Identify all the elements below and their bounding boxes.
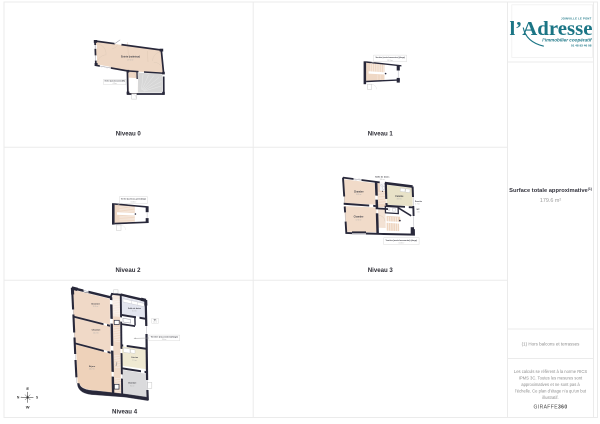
- svg-text:Verrière (accès/mezzanine) (ét: Verrière (accès/mezzanine) (étage): [375, 56, 405, 59]
- svg-text:Niveau 3: Niveau 3: [368, 267, 394, 274]
- svg-text:approximatives et ne sont pas: approximatives et ne sont pas à: [521, 382, 580, 387]
- svg-text:Douche: Douche: [415, 201, 423, 203]
- svg-text:13.3 m²: 13.3 m²: [387, 59, 393, 62]
- svg-text:Niveau 1: Niveau 1: [368, 131, 394, 138]
- svg-text:11.9 m²: 11.9 m²: [356, 193, 362, 196]
- svg-text:Entrée (extérieur): Entrée (extérieur): [121, 56, 140, 59]
- svg-text:Chambre: Chambre: [92, 329, 102, 332]
- svg-text:Cuisine: Cuisine: [131, 357, 139, 359]
- svg-text:17.3 m²: 17.3 m²: [355, 218, 361, 221]
- svg-text:179.6 m²: 179.6 m²: [540, 198, 561, 204]
- svg-text:3.4 m²: 3.4 m²: [380, 178, 385, 181]
- svg-text:8.9 m²: 8.9 m²: [397, 198, 402, 201]
- svg-text:l’immobilier coopératif: l’immobilier coopératif: [542, 37, 592, 42]
- svg-text:Verrière (accès/mezzanine) (ét: Verrière (accès/mezzanine) (étage): [386, 239, 418, 242]
- svg-text:illustratif.: illustratif.: [542, 395, 558, 400]
- svg-text:Salle de bains: Salle de bains: [375, 176, 390, 178]
- svg-text:l’échelle. Ce plan d’étage n’a: l’échelle. Ce plan d’étage n’a qu’un but: [515, 389, 587, 394]
- svg-text:Cuisine: Cuisine: [395, 196, 404, 198]
- svg-text:01 48 93 46 08: 01 48 93 46 08: [571, 44, 592, 48]
- svg-text:Les calculs se réfèrent à la n: Les calculs se réfèrent à la norme RICS: [514, 369, 587, 374]
- svg-text:IPMS 3C. Toutes les mesures so: IPMS 3C. Toutes les mesures sont: [519, 376, 583, 381]
- svg-text:13.3 m²: 13.3 m²: [131, 200, 137, 203]
- svg-text:1.7 m²: 1.7 m²: [415, 203, 420, 206]
- svg-text:13.3 m²: 13.3 m²: [399, 242, 405, 245]
- svg-text:Chambre: Chambre: [128, 383, 137, 385]
- svg-text:Chambre: Chambre: [354, 191, 365, 194]
- svg-text:GIRAFFE360: GIRAFFE360: [533, 405, 567, 411]
- svg-text:Verrière (mezzanine) (étage): Verrière (mezzanine) (étage): [151, 336, 179, 339]
- svg-text:Surface totale approximative(1: Surface totale approximative(1): [509, 187, 592, 194]
- svg-text:11.3 m²: 11.3 m²: [93, 305, 99, 308]
- svg-text:Salle de bains: Salle de bains: [128, 308, 141, 310]
- svg-text:27.1 m²: 27.1 m²: [127, 58, 134, 61]
- svg-text:Niveau 0: Niveau 0: [116, 131, 142, 138]
- svg-text:Verrière (accès/sous-pente) (é: Verrière (accès/sous-pente) (étage): [121, 198, 146, 201]
- svg-text:Niveau 4: Niveau 4: [112, 409, 138, 416]
- svg-text:26.2 m²: 26.2 m²: [89, 368, 95, 371]
- svg-text:Chambre: Chambre: [354, 216, 365, 219]
- svg-text:1 m²: 1 m²: [417, 210, 421, 213]
- svg-text:Niveau 2: Niveau 2: [115, 267, 141, 274]
- svg-text:W: W: [26, 405, 30, 410]
- svg-text:14.3 m²: 14.3 m²: [93, 331, 99, 334]
- svg-text:E: E: [26, 386, 29, 391]
- svg-text:(1) Hors balcons et terrasses: (1) Hors balcons et terrasses: [522, 341, 581, 346]
- svg-text:Séjour: Séjour: [89, 365, 96, 368]
- svg-text:S: S: [36, 396, 38, 400]
- svg-text:Chambre: Chambre: [91, 302, 101, 305]
